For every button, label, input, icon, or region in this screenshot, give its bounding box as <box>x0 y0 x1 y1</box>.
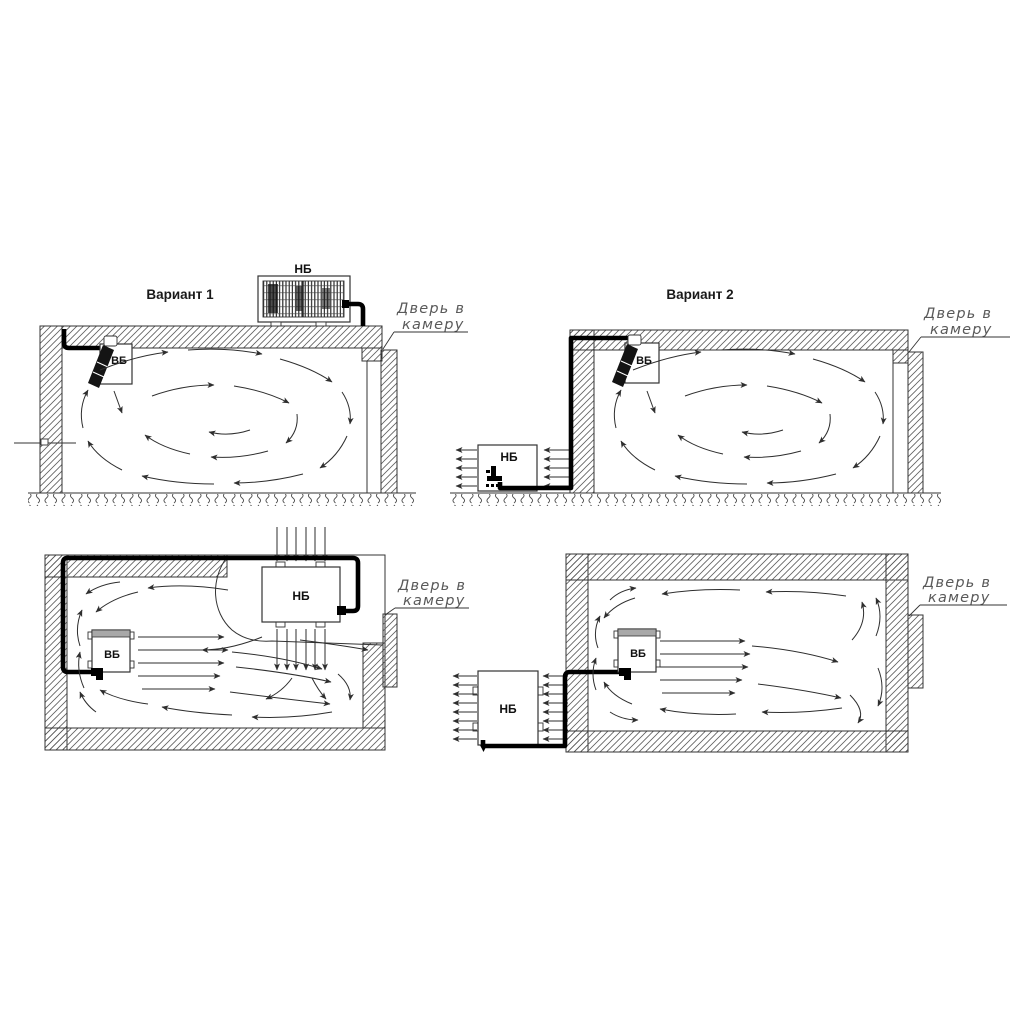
indoor-unit-label: ВБ <box>104 649 120 661</box>
door-lintel <box>893 350 908 363</box>
outdoor-unit <box>258 276 350 326</box>
variant2-plan-view: НБ ВБ <box>453 554 1007 752</box>
door-annotation: Дверь в камеру <box>909 306 1010 352</box>
outdoor-unit-label: НБ <box>292 589 310 603</box>
door-label-line2: камеру <box>402 317 465 333</box>
door-label-line1: Дверь в <box>397 578 466 594</box>
variant1-side-view: Вариант 1 НБ <box>14 262 468 506</box>
right-wall <box>363 643 385 728</box>
door-label-line2: камеру <box>928 590 991 606</box>
bottom-wall <box>566 731 908 752</box>
exhaust-arrows <box>277 629 325 670</box>
door-label-line1: Дверь в <box>396 301 465 317</box>
left-wall <box>40 326 62 493</box>
door-annotation: Дверь в камеру <box>909 575 1007 616</box>
door-label-line2: камеру <box>930 322 993 338</box>
door-annotation: Дверь в камеру <box>385 578 469 615</box>
door-block <box>381 350 397 493</box>
door-label-line1: Дверь в <box>922 575 991 591</box>
door-annotation: Дверь в камеру <box>383 301 468 349</box>
right-wall <box>886 554 908 752</box>
ground-hatch <box>28 494 416 506</box>
door-block <box>908 615 923 688</box>
indoor-unit-label: ВБ <box>630 648 646 660</box>
door-label-line1: Дверь в <box>923 306 992 322</box>
diagram-canvas: Вариант 1 НБ <box>0 0 1024 1024</box>
door-block <box>383 614 397 687</box>
door-block <box>908 352 923 493</box>
outdoor-unit-label: НБ <box>500 450 518 464</box>
door-lintel <box>362 348 382 361</box>
outdoor-unit-label: НБ <box>294 262 312 276</box>
outer-boundary <box>566 554 908 752</box>
variant1-title: Вариант 1 <box>146 287 214 302</box>
outdoor-unit-label: НБ <box>499 702 517 716</box>
indoor-unit-label: ВБ <box>636 355 652 367</box>
variant2-side-view: Вариант 2 НБ <box>450 287 1010 506</box>
ground-hatch <box>450 494 941 506</box>
variant2-title: Вариант 2 <box>666 287 733 302</box>
drain-line <box>14 439 76 445</box>
door-leader-line <box>909 605 920 616</box>
hvac-installation-diagram: Вариант 1 НБ <box>0 0 1024 1024</box>
variant1-plan-view: НБ ВБ <box>45 527 469 750</box>
door-leader-line <box>383 332 394 349</box>
left-wall <box>570 330 594 493</box>
door-label-line2: камеру <box>403 593 466 609</box>
door-leader-line <box>909 337 921 352</box>
bottom-wall <box>45 728 385 750</box>
top-wall <box>566 554 908 580</box>
left-wall <box>566 554 588 752</box>
